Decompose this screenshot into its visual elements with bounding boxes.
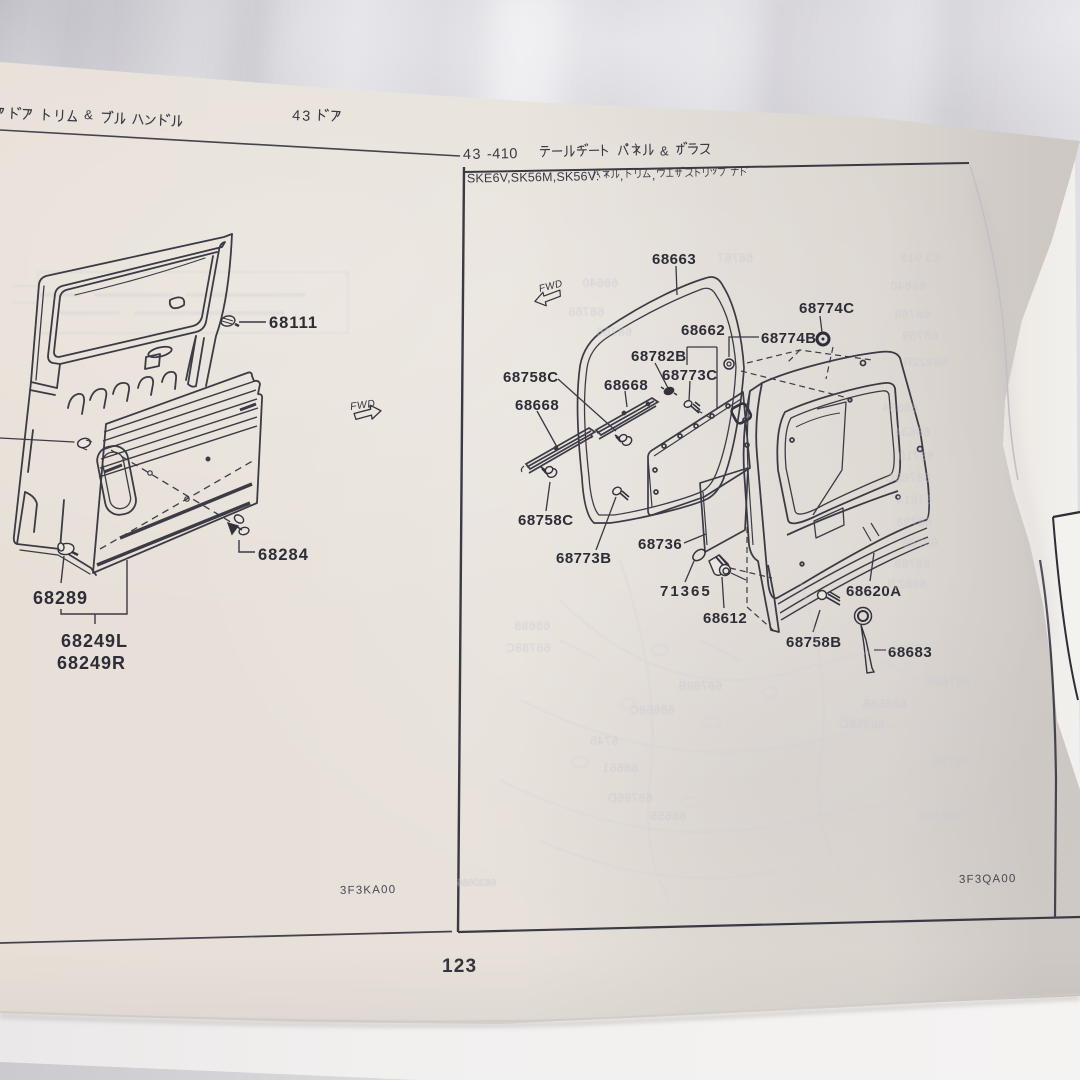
svg-text:6830686: 6830686: [457, 878, 496, 889]
svg-text:3F3QA00: 3F3QA00: [959, 873, 1017, 886]
svg-text:68663: 68663: [652, 251, 696, 268]
svg-text:68773B: 68773B: [556, 550, 612, 567]
svg-text:68767: 68767: [717, 251, 753, 265]
svg-text:&: &: [84, 107, 94, 122]
svg-text:68683: 68683: [888, 644, 932, 661]
svg-text:68788C: 68788C: [885, 471, 930, 485]
svg-text:43: 43: [463, 147, 482, 163]
svg-text:123: 123: [442, 956, 477, 977]
svg-text:68111: 68111: [269, 314, 318, 332]
svg-text:68710: 68710: [898, 449, 934, 463]
svg-text:68769: 68769: [902, 329, 938, 343]
svg-text:68662: 68662: [681, 322, 725, 339]
svg-text:68786D: 68786D: [607, 791, 652, 805]
svg-text:68822L: 68822L: [883, 577, 926, 591]
svg-text:68758C: 68758C: [503, 369, 559, 386]
svg-text:68661: 68661: [602, 761, 638, 775]
svg-text:&: &: [660, 143, 669, 158]
svg-text:68788B: 68788B: [918, 809, 962, 823]
svg-text:68768: 68768: [894, 307, 930, 321]
svg-text:,: ,: [652, 168, 656, 182]
svg-text:68773C: 68773C: [662, 367, 718, 384]
svg-text:68789: 68789: [894, 557, 930, 571]
svg-text:68249L: 68249L: [61, 631, 128, 651]
svg-text:68758B: 68758B: [786, 634, 842, 651]
svg-text:68788B: 68788B: [678, 679, 722, 693]
svg-text:68788C: 68788C: [505, 641, 550, 655]
svg-text:68798: 68798: [896, 515, 932, 529]
svg-text:68768: 68768: [568, 305, 604, 319]
svg-text:,: ,: [620, 169, 624, 183]
svg-text:68612: 68612: [703, 610, 747, 627]
svg-text:43: 43: [292, 108, 313, 125]
svg-text:68284: 68284: [258, 546, 309, 564]
svg-text:67814: 67814: [896, 493, 932, 507]
svg-text:-410: -410: [487, 146, 518, 163]
svg-text:68668: 68668: [515, 397, 559, 414]
svg-text:68788: 68788: [932, 755, 968, 769]
svg-text:68766: 68766: [596, 325, 632, 339]
svg-text:68834: 68834: [882, 401, 918, 415]
svg-text:68774C: 68774C: [799, 300, 855, 317]
svg-text:68640: 68640: [582, 276, 618, 290]
svg-text:SKE6V,SK56M,SK56V:: SKE6V,SK56M,SK56V:: [467, 169, 600, 185]
svg-text:3F3KA00: 3F3KA00: [340, 884, 397, 897]
svg-text:68774B: 68774B: [761, 330, 817, 347]
svg-text:63 918: 63 918: [900, 251, 940, 265]
svg-text:68668: 68668: [604, 377, 648, 394]
svg-text:68688: 68688: [514, 619, 550, 633]
svg-text:68634: 68634: [894, 425, 930, 439]
svg-text:68758C: 68758C: [518, 512, 574, 529]
svg-text:68656B: 68656B: [862, 697, 906, 711]
svg-text:68782B: 68782B: [631, 348, 687, 365]
svg-text:68768B: 68768B: [926, 675, 970, 689]
svg-text:68289: 68289: [33, 588, 88, 608]
svg-text:68736: 68736: [638, 536, 682, 553]
svg-text:68640: 68640: [890, 279, 926, 293]
svg-text:68788: 68788: [902, 536, 938, 550]
svg-text:68822R: 68822R: [902, 355, 947, 369]
svg-text:68655: 68655: [650, 809, 686, 823]
svg-text:68249R: 68249R: [57, 653, 126, 673]
svg-text:68658C: 68658C: [839, 717, 884, 731]
svg-text:71365: 71365: [660, 583, 712, 600]
